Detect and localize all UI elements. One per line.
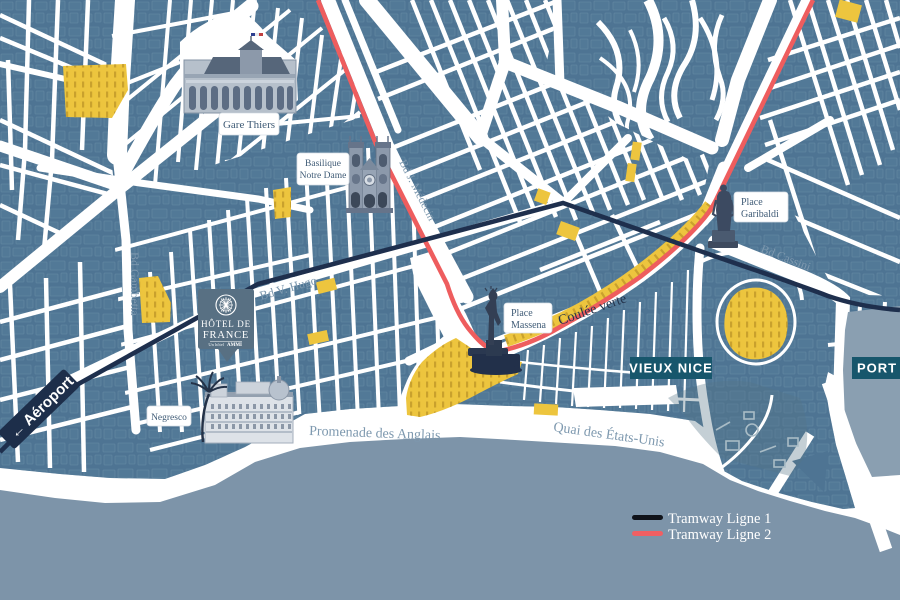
svg-text:Negresco: Negresco — [151, 413, 187, 423]
svg-text:Bd Gambetta: Bd Gambetta — [128, 252, 142, 316]
svg-text:Tramway Ligne 2: Tramway Ligne 2 — [668, 527, 771, 543]
svg-text:Un hôtel: Un hôtel — [208, 342, 224, 347]
svg-text:HÔTEL DE: HÔTEL DE — [201, 319, 251, 329]
svg-text:Promenade des Anglais: Promenade des Anglais — [309, 424, 441, 444]
svg-text:Basilique: Basilique — [305, 159, 341, 169]
svg-text:Place: Place — [511, 308, 533, 319]
svg-text:Tramway Ligne 1: Tramway Ligne 1 — [668, 511, 771, 527]
svg-text:Notre Dame: Notre Dame — [300, 171, 347, 181]
svg-text:Massena: Massena — [511, 320, 547, 331]
svg-text:AMMI: AMMI — [227, 343, 242, 348]
svg-text:Gare Thiers: Gare Thiers — [223, 119, 275, 131]
svg-text:Place: Place — [741, 197, 763, 208]
svg-text:PORT: PORT — [857, 361, 897, 376]
svg-text:VIEUX NICE: VIEUX NICE — [629, 361, 713, 376]
svg-text:FRANCE: FRANCE — [203, 330, 249, 341]
svg-text:Garibaldi: Garibaldi — [741, 209, 779, 220]
